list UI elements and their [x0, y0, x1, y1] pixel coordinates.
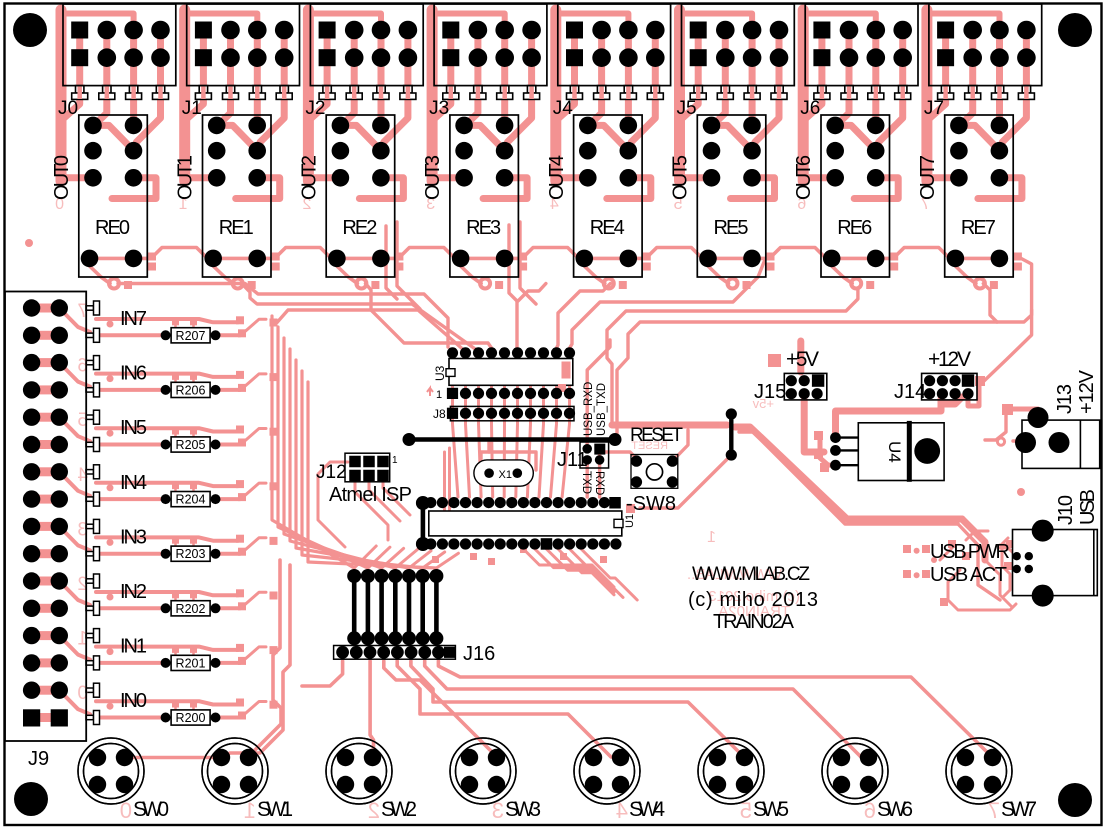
svg-text:OUT5: OUT5 [670, 155, 692, 200]
svg-text:SW5: SW5 [753, 798, 789, 821]
svg-text:USB: USB [1077, 489, 1099, 525]
svg-text:RE2: RE2 [342, 217, 377, 239]
svg-text:R200: R200 [176, 711, 206, 725]
svg-text:OUT7: OUT7 [917, 155, 939, 200]
svg-text:J8: J8 [433, 407, 446, 421]
svg-text:R202: R202 [176, 602, 206, 616]
svg-text:IN2: IN2 [120, 581, 147, 603]
svg-text:USB_RXD: USB_RXD [583, 382, 595, 436]
svg-text:J7: J7 [924, 98, 944, 119]
svg-text:OUT3: OUT3 [422, 155, 444, 200]
svg-text:TRAIN02A: TRAIN02A [713, 611, 795, 633]
svg-text:SW0: SW0 [133, 798, 169, 821]
svg-text:OUT0: OUT0 [51, 155, 73, 200]
svg-text:RE3: RE3 [466, 217, 501, 239]
svg-text:1: 1 [436, 389, 442, 401]
svg-text:R205: R205 [176, 438, 206, 452]
svg-text:IN1: IN1 [120, 636, 147, 658]
svg-text:J5: J5 [677, 98, 697, 119]
svg-text:U3: U3 [433, 365, 447, 381]
svg-text:SW7: SW7 [1001, 798, 1037, 821]
svg-text:J10: J10 [1055, 495, 1077, 525]
svg-text:IN3: IN3 [120, 526, 147, 548]
svg-text:J0: J0 [58, 98, 78, 119]
svg-text:OUT4: OUT4 [546, 155, 568, 200]
svg-text:IN6: IN6 [120, 363, 147, 385]
svg-text:USB ACT: USB ACT [930, 564, 1007, 586]
svg-text:J14: J14 [894, 381, 926, 403]
svg-text:IN7: IN7 [120, 308, 147, 330]
svg-text:J13: J13 [1054, 384, 1076, 414]
svg-text:OUT2: OUT2 [298, 155, 320, 200]
svg-text:J4: J4 [553, 98, 574, 119]
svg-text:J6: J6 [800, 98, 820, 119]
svg-text:J11: J11 [557, 449, 588, 471]
svg-text:IN5: IN5 [120, 417, 147, 439]
svg-text:J3: J3 [429, 98, 449, 119]
svg-text:USB PWR: USB PWR [930, 541, 1010, 563]
svg-text:U1: U1 [624, 514, 636, 528]
svg-text:RE0: RE0 [95, 217, 130, 239]
svg-text:USB_TXD: USB_TXD [596, 383, 608, 436]
svg-text:RE7: RE7 [961, 217, 996, 239]
svg-text:OUT6: OUT6 [793, 155, 815, 200]
svg-text:-SW8: -SW8 [626, 493, 676, 515]
svg-text:OUT1: OUT1 [175, 155, 197, 200]
svg-text:J12: J12 [316, 462, 347, 483]
svg-text:RE4: RE4 [590, 217, 625, 239]
svg-text:TXD: TXD [580, 471, 592, 494]
svg-text:(c) miho 2013: (c) miho 2013 [688, 589, 818, 611]
svg-text:R206: R206 [176, 383, 206, 397]
svg-text:1: 1 [707, 529, 716, 546]
svg-text:J9: J9 [28, 748, 49, 770]
svg-text:R203: R203 [176, 547, 206, 561]
svg-text:J15: J15 [754, 381, 786, 403]
svg-text:R201: R201 [176, 656, 206, 670]
svg-text:RE5: RE5 [714, 217, 749, 239]
svg-text:IN0: IN0 [120, 690, 147, 712]
svg-text:SW6: SW6 [877, 798, 913, 821]
svg-text:SW4: SW4 [629, 798, 665, 821]
svg-text:R207: R207 [176, 329, 206, 343]
svg-text:Atmel ISP: Atmel ISP [329, 484, 412, 506]
svg-text:IN4: IN4 [120, 472, 147, 494]
svg-text:U4: U4 [885, 441, 904, 463]
svg-text:RXD: RXD [593, 471, 605, 495]
svg-text:J16: J16 [463, 643, 495, 665]
svg-text:+5V: +5V [786, 348, 819, 371]
svg-text:X1: X1 [499, 469, 512, 481]
svg-text:+12V: +12V [1076, 369, 1098, 414]
svg-text:J2: J2 [305, 98, 325, 119]
svg-text:SW3: SW3 [505, 798, 541, 821]
svg-text:1: 1 [392, 455, 398, 466]
svg-text:+12V: +12V [928, 348, 971, 371]
svg-text:RESET: RESET [630, 425, 683, 446]
svg-text:RE6: RE6 [837, 217, 872, 239]
svg-text:SW2: SW2 [381, 798, 417, 821]
svg-text:R204: R204 [176, 493, 206, 507]
svg-text:WWW.MLAB.CZ: WWW.MLAB.CZ [692, 564, 810, 585]
svg-text:SW1: SW1 [257, 798, 293, 821]
svg-text:J1: J1 [182, 98, 202, 119]
svg-text:RE1: RE1 [219, 217, 254, 239]
